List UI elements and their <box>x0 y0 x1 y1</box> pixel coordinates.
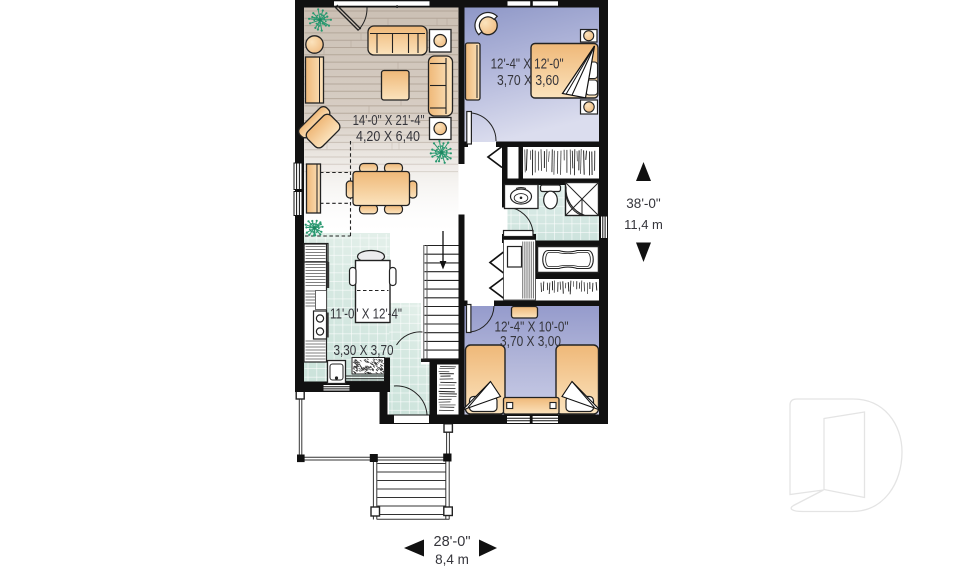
svg-text:11,4 m: 11,4 m <box>624 217 663 232</box>
svg-text:3,70 X 3,00: 3,70 X 3,00 <box>500 334 561 350</box>
svg-text:11'-0" X 12'-4": 11'-0" X 12'-4" <box>330 307 402 323</box>
svg-text:3,30 X 3,70: 3,30 X 3,70 <box>334 343 394 359</box>
svg-text:28'-0": 28'-0" <box>434 534 471 550</box>
svg-text:3,70 X 3,60: 3,70 X 3,60 <box>497 73 559 89</box>
svg-text:8,4 m: 8,4 m <box>435 552 469 567</box>
svg-text:12'-4" X 12'-0": 12'-4" X 12'-0" <box>491 57 564 73</box>
svg-text:14'-0" X 21'-4": 14'-0" X 21'-4" <box>353 113 425 129</box>
svg-text:4,20 X 6,40: 4,20 X 6,40 <box>356 129 420 145</box>
svg-text:38'-0": 38'-0" <box>626 196 661 211</box>
